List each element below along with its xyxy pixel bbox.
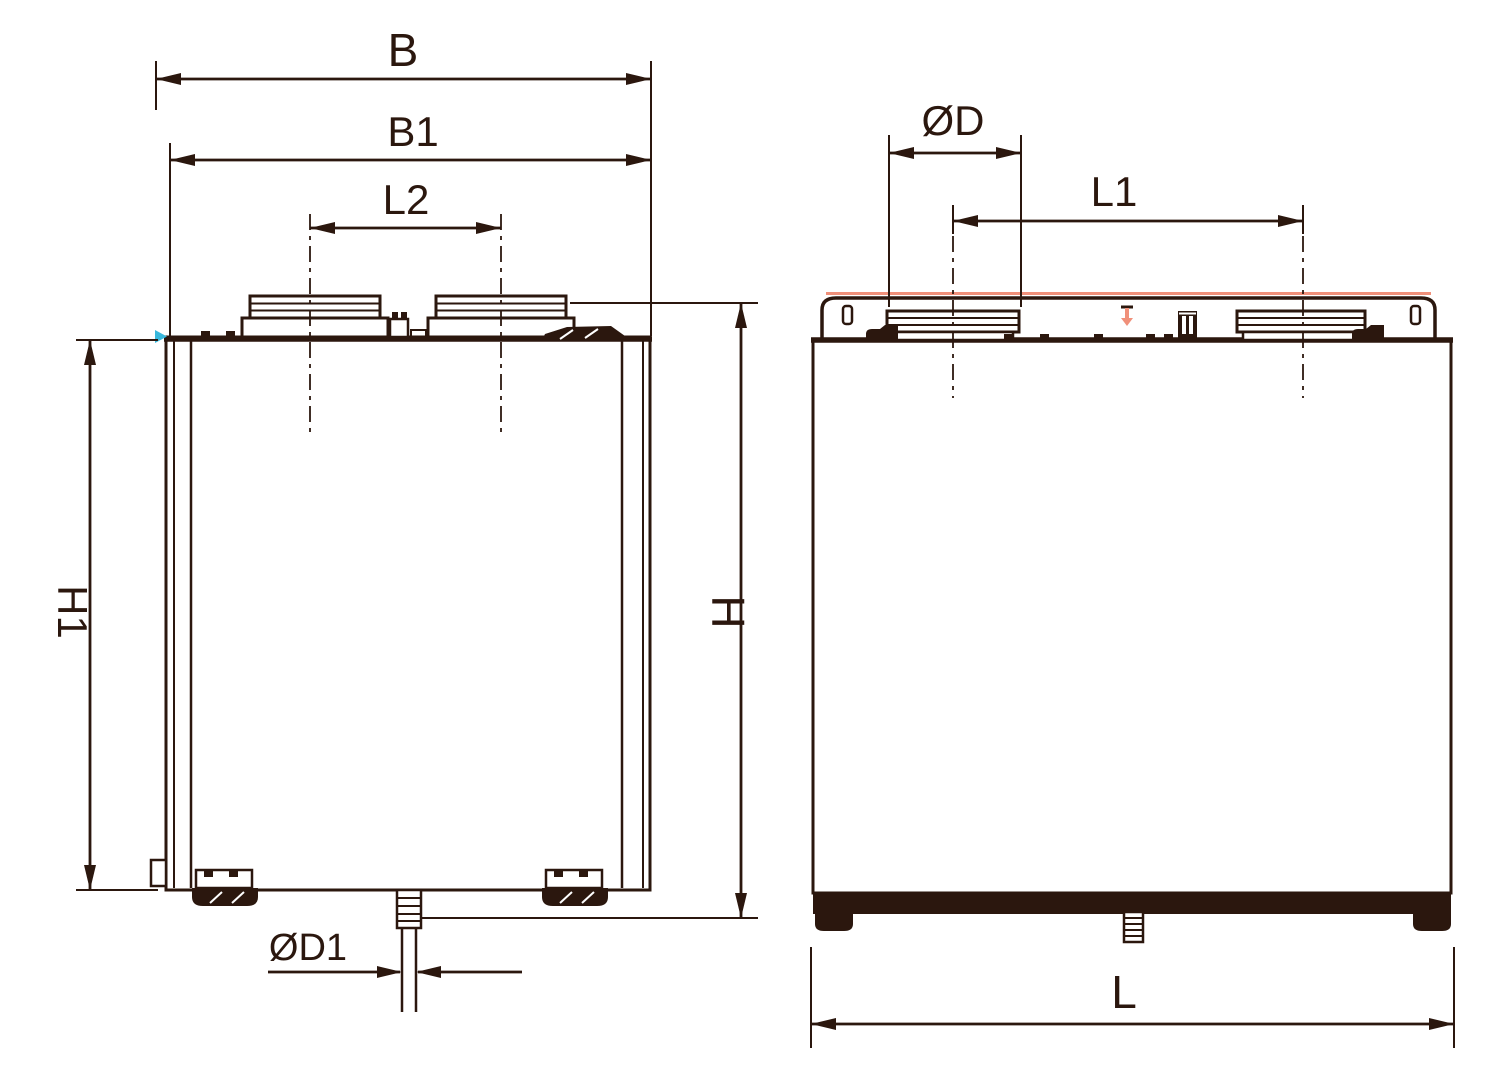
drawing-sheet: B B1 L2 H1 (0, 0, 1500, 1066)
front-drain-pipe (397, 890, 421, 1012)
front-top-fitting (390, 312, 426, 337)
side-collar-right (1237, 311, 1365, 340)
keyhole-slot-icon (843, 306, 852, 324)
dimension-D1: ØD1 (268, 927, 522, 978)
dim-label-L: L (1111, 966, 1137, 1018)
dimension-D: ØD (889, 97, 1021, 307)
dim-label-L1: L1 (1091, 168, 1138, 215)
dim-label-D1: ØD1 (269, 927, 347, 969)
side-terminal-fitting (1178, 311, 1197, 340)
side-view: ØD L1 L (811, 97, 1454, 1048)
top-bump (1094, 334, 1103, 340)
top-bump (1164, 334, 1173, 340)
front-collar-left (242, 296, 388, 337)
top-bump (1040, 334, 1049, 340)
side-body (813, 339, 1451, 893)
top-bump (1146, 334, 1155, 340)
side-foot-right (1413, 913, 1451, 931)
dim-label-D: ØD (922, 97, 985, 144)
front-side-tab (151, 860, 166, 886)
front-foot-right (542, 870, 608, 906)
front-body (166, 337, 650, 890)
top-bump (201, 331, 210, 337)
dimension-H1: H1 (49, 340, 158, 890)
top-bump (1004, 334, 1013, 340)
dimension-L: L (811, 947, 1454, 1048)
keyhole-slot-icon (1411, 306, 1420, 324)
front-view: B B1 L2 H1 (49, 24, 758, 1012)
front-foot-left (192, 870, 258, 906)
dim-label-H1: H1 (49, 585, 96, 639)
dimension-L2: L2 (310, 176, 501, 234)
dim-label-L2: L2 (383, 176, 430, 223)
dimension-L1: L1 (953, 168, 1303, 234)
dim-label-B: B (388, 24, 419, 76)
dim-label-B1: B1 (387, 108, 438, 155)
dim-label-H: H (702, 595, 754, 628)
side-foot-left (815, 913, 853, 931)
top-bump (226, 331, 235, 337)
cad-drawing: B B1 L2 H1 (0, 0, 1500, 1066)
side-drain-stub (1124, 912, 1143, 942)
